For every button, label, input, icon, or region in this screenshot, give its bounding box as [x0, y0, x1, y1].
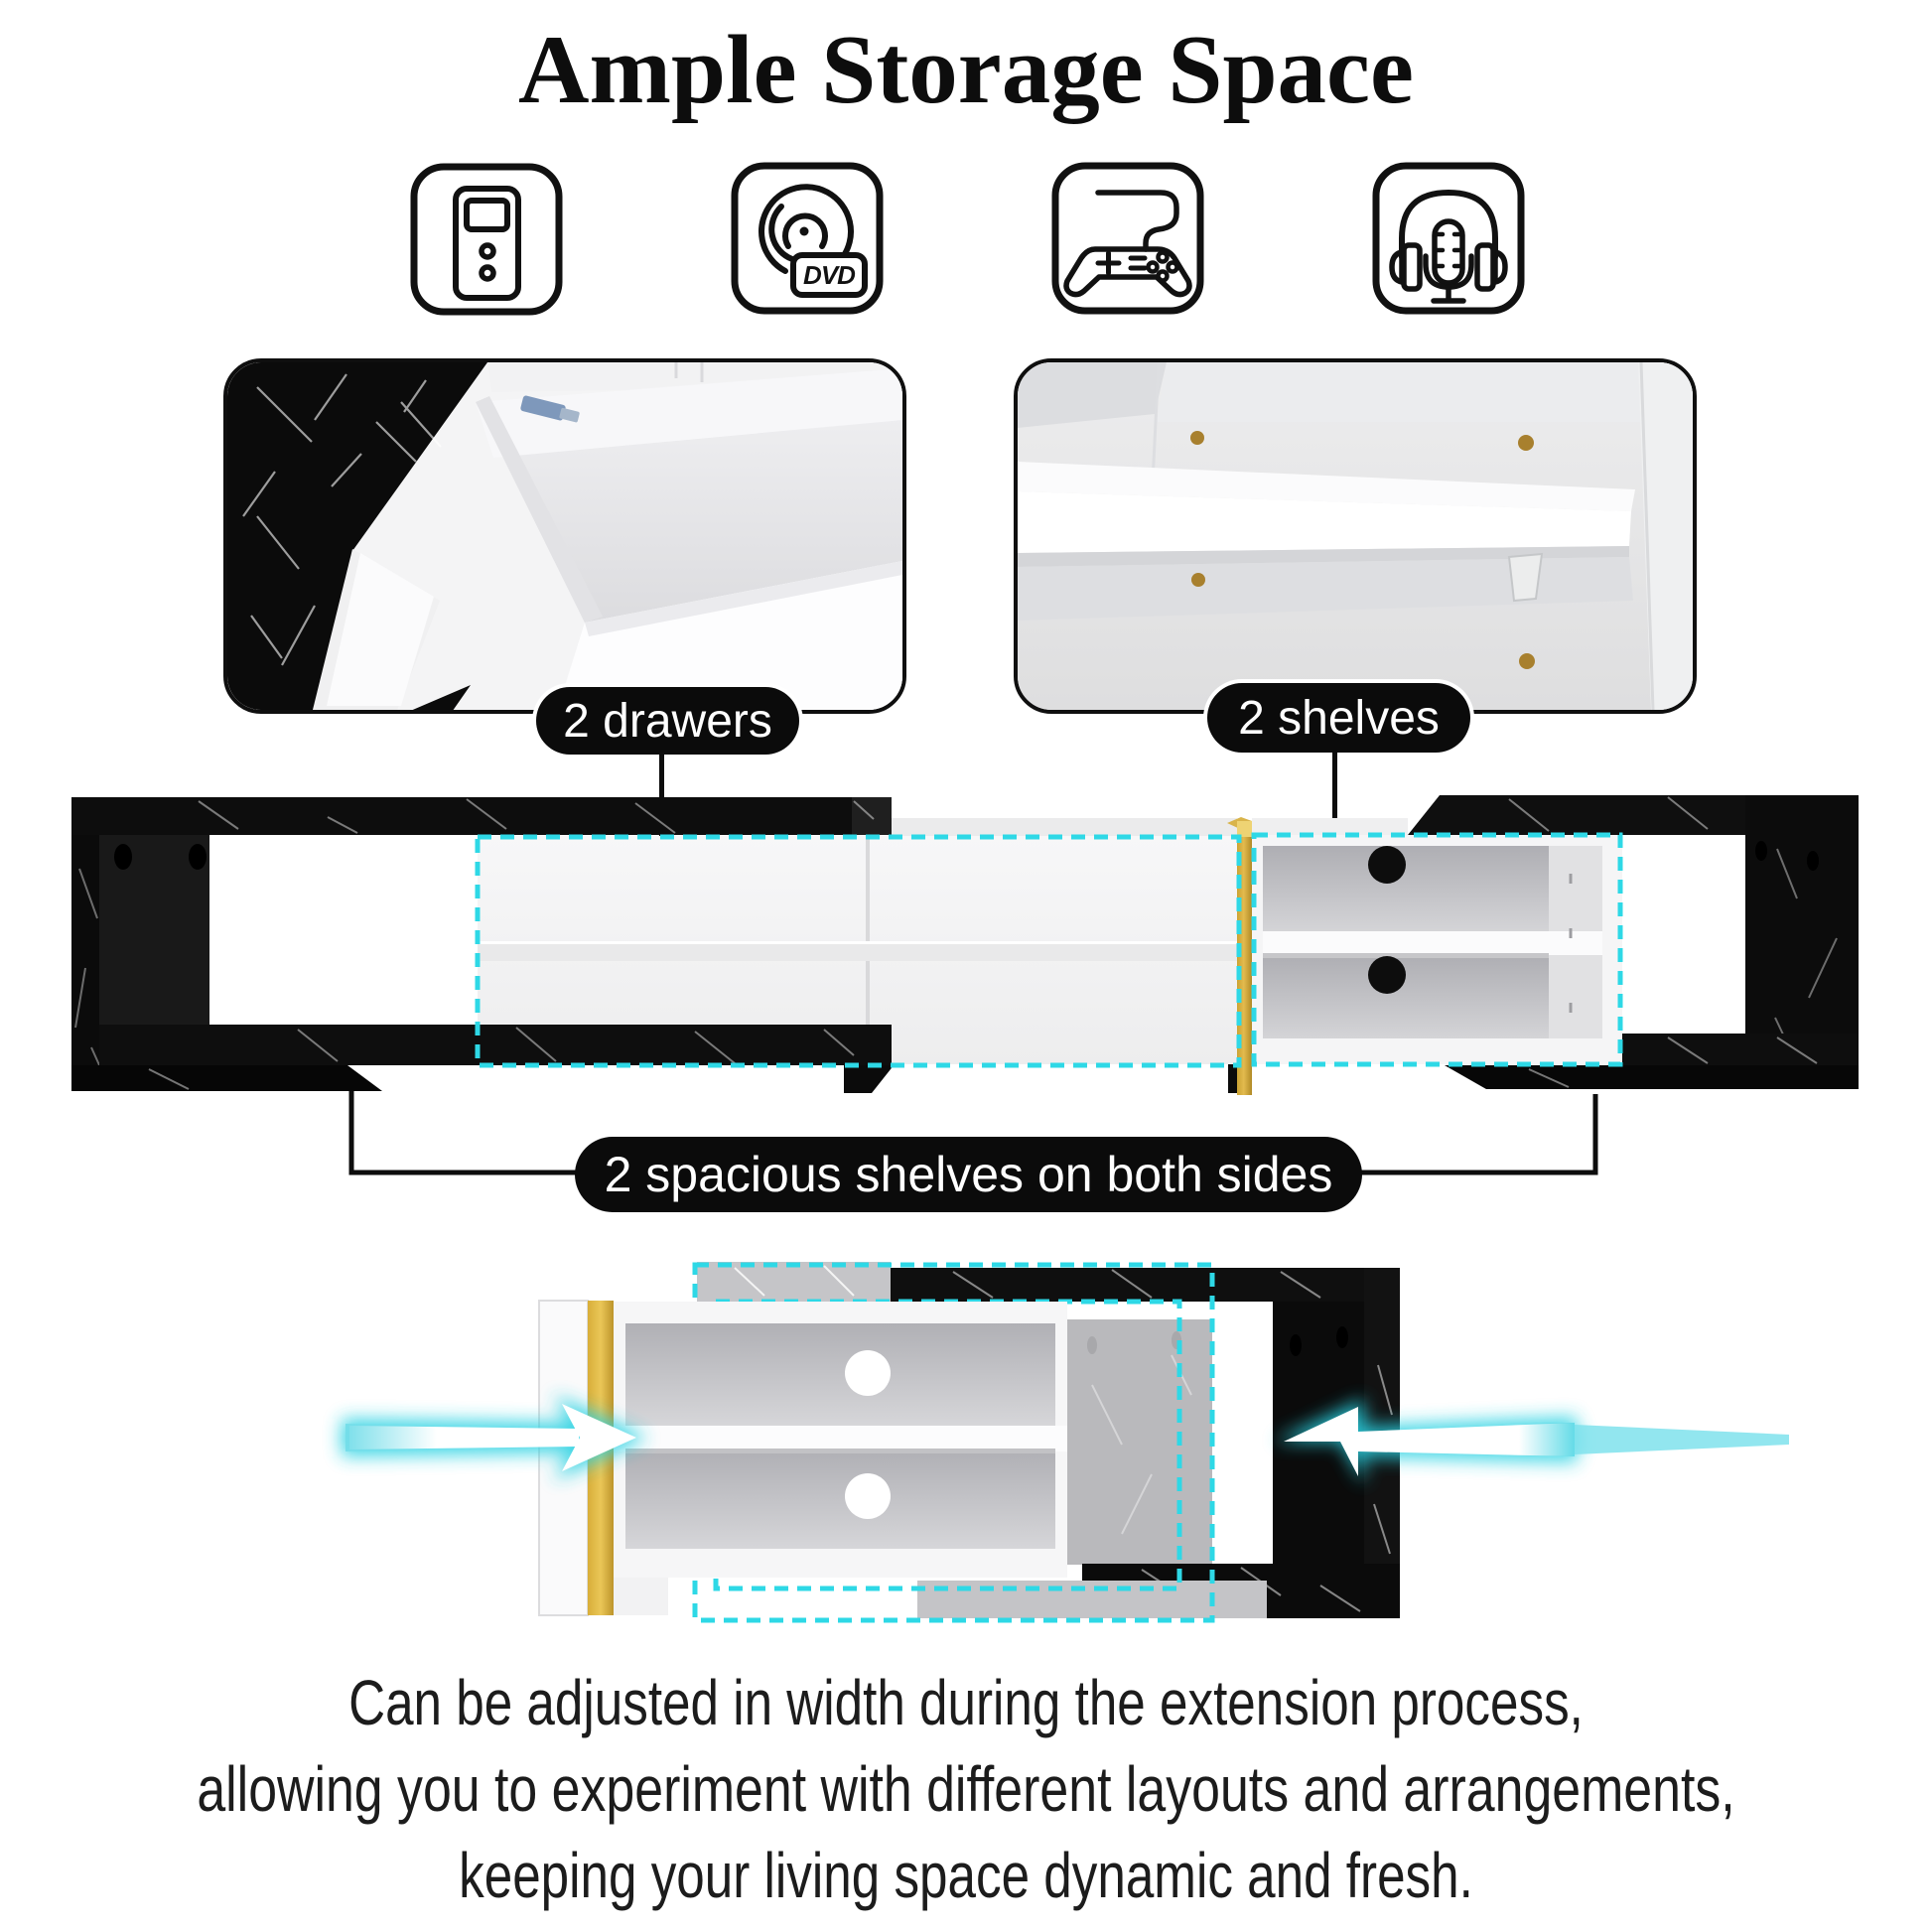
svg-text:DVD: DVD [803, 260, 856, 290]
